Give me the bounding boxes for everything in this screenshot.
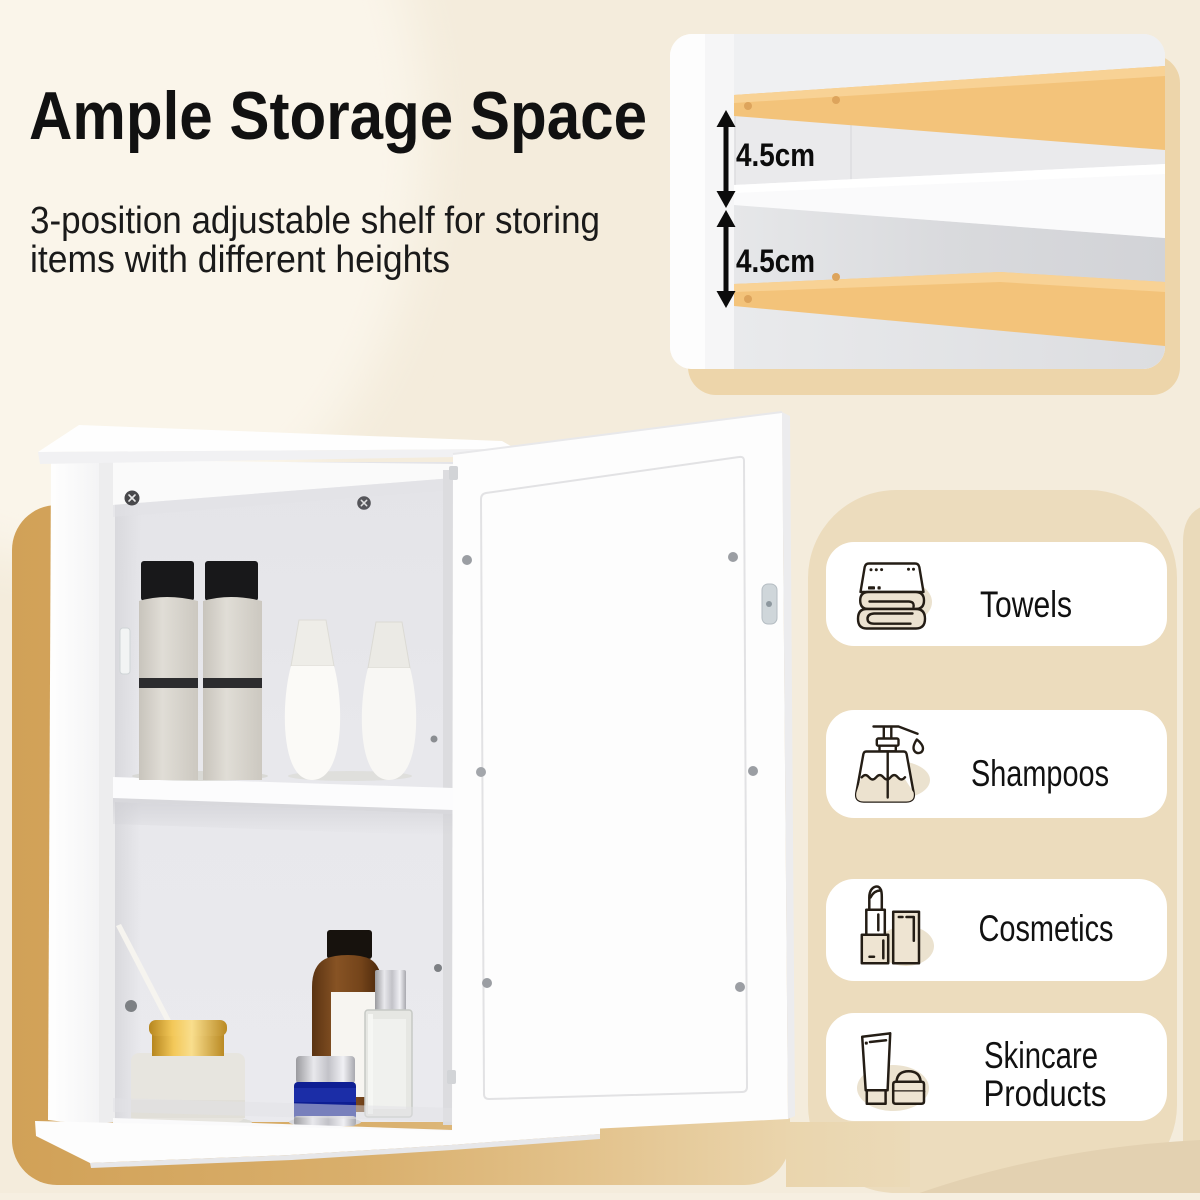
svg-text:Towels: Towels xyxy=(980,584,1072,625)
svg-text:items with different heights: items with different heights xyxy=(30,239,450,281)
svg-text:3-position adjustable shelf fo: 3-position adjustable shelf for storing xyxy=(30,200,600,242)
svg-text:4.5cm: 4.5cm xyxy=(736,137,815,173)
svg-text:Shampoos: Shampoos xyxy=(971,753,1109,794)
svg-text:4.5cm: 4.5cm xyxy=(736,243,815,279)
svg-text:Cosmetics: Cosmetics xyxy=(979,908,1114,949)
svg-text:Skincare: Skincare xyxy=(984,1035,1098,1076)
svg-text:Ample Storage Space: Ample Storage Space xyxy=(29,78,647,154)
svg-text:Products: Products xyxy=(984,1073,1107,1114)
